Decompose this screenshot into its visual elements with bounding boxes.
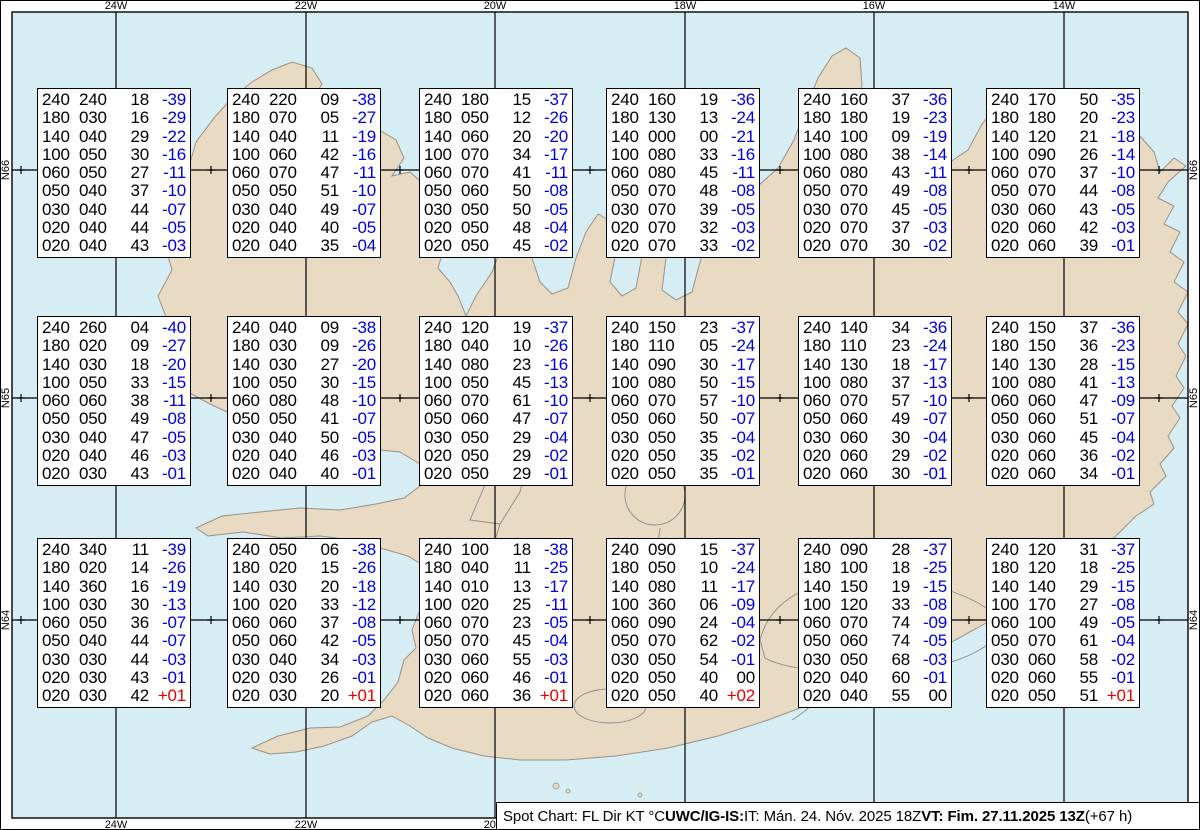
- wind-speed-value: 42: [1069, 219, 1098, 237]
- temperature-value: -04: [339, 237, 376, 255]
- flight-level-value: 100: [611, 374, 648, 392]
- temperature-value: -29: [149, 109, 186, 127]
- wind-speed-value: 13: [689, 109, 718, 127]
- flight-level-value: 020: [424, 687, 461, 705]
- wind-speed-value: 37: [120, 182, 149, 200]
- wind-speed-value: 51: [1069, 687, 1098, 705]
- wind-speed-value: 42: [310, 632, 339, 650]
- meridian-label-top: 24W: [105, 0, 128, 12]
- wind-dir-value: 030: [79, 651, 120, 669]
- spot-data-row: 10002033-12: [232, 596, 376, 614]
- flight-level-value: 180: [803, 559, 840, 577]
- wind-speed-value: 14: [120, 559, 149, 577]
- wind-dir-value: 050: [79, 146, 120, 164]
- spot-data-row: 24016019-36: [611, 91, 755, 109]
- wind-speed-value: 68: [881, 651, 910, 669]
- temperature-value: -01: [910, 465, 947, 483]
- spot-data-row: 02004046-03: [42, 447, 186, 465]
- spot-data-row: 18013013-24: [611, 109, 755, 127]
- spot-data-row: 10007034-17: [424, 146, 568, 164]
- wind-speed-value: 19: [881, 109, 910, 127]
- wind-dir-value: 050: [461, 219, 502, 237]
- flight-level-value: 050: [991, 410, 1028, 428]
- wind-dir-value: 150: [1028, 337, 1069, 355]
- flight-level-value: 060: [232, 392, 269, 410]
- wind-dir-value: 070: [269, 164, 310, 182]
- wind-speed-value: 28: [881, 541, 910, 559]
- flight-level-value: 050: [611, 632, 648, 650]
- wind-dir-value: 180: [840, 109, 881, 127]
- spot-data-box: 24022009-3818007005-2714004011-191000604…: [227, 88, 381, 258]
- spot-data-box: 24018015-3718005012-2614006020-201000703…: [419, 88, 573, 258]
- wind-dir-value: 040: [461, 337, 502, 355]
- temperature-value: -07: [339, 410, 376, 428]
- flight-level-value: 060: [611, 164, 648, 182]
- temperature-value: -37: [718, 541, 755, 559]
- wind-speed-value: 48: [310, 392, 339, 410]
- wind-dir-value: 030: [79, 109, 120, 127]
- temperature-value: -02: [1098, 651, 1135, 669]
- wind-dir-value: 120: [1028, 541, 1069, 559]
- wind-dir-value: 080: [840, 146, 881, 164]
- flight-level-value: 050: [232, 182, 269, 200]
- flight-level-value: 180: [232, 559, 269, 577]
- flight-level-value: 020: [424, 447, 461, 465]
- wind-speed-value: 31: [1069, 541, 1098, 559]
- wind-dir-value: 090: [840, 541, 881, 559]
- wind-dir-value: 030: [269, 356, 310, 374]
- spot-data-box: 24012031-3718012018-2514014029-151001702…: [986, 538, 1140, 708]
- flight-level-value: 020: [991, 237, 1028, 255]
- wind-speed-value: 35: [689, 465, 718, 483]
- spot-data-row: 24012031-37: [991, 541, 1135, 559]
- temperature-value: -15: [1098, 578, 1135, 596]
- spot-data-row: 14015019-15: [803, 578, 947, 596]
- spot-data-row: 02006046-01: [424, 669, 568, 687]
- flight-level-value: 240: [42, 91, 79, 109]
- temperature-value: -01: [1098, 237, 1135, 255]
- flight-level-value: 020: [42, 447, 79, 465]
- wind-dir-value: 060: [840, 465, 881, 483]
- spot-data-row: 10008038-14: [803, 146, 947, 164]
- wind-speed-value: 33: [120, 374, 149, 392]
- temperature-value: -26: [149, 559, 186, 577]
- temperature-value: +01: [1098, 687, 1135, 705]
- spot-data-row: 14036016-19: [42, 578, 186, 596]
- temperature-value: -16: [339, 146, 376, 164]
- flight-level-value: 030: [42, 651, 79, 669]
- wind-speed-value: 45: [1069, 429, 1098, 447]
- temperature-value: -11: [718, 164, 755, 182]
- temperature-value: -10: [339, 182, 376, 200]
- wind-dir-value: 060: [269, 146, 310, 164]
- spot-data-row: 06008048-10: [232, 392, 376, 410]
- spot-data-row: 06007023-05: [424, 614, 568, 632]
- wind-speed-value: 27: [120, 164, 149, 182]
- wind-dir-value: 080: [461, 356, 502, 374]
- temperature-value: -05: [1098, 201, 1135, 219]
- spot-data-row: 0200405500: [803, 687, 947, 705]
- temperature-value: -01: [910, 669, 947, 687]
- wind-speed-value: 37: [310, 614, 339, 632]
- wind-dir-value: 050: [269, 374, 310, 392]
- wind-speed-value: 13: [502, 578, 531, 596]
- temperature-value: -04: [718, 614, 755, 632]
- spot-data-row: 02003043-01: [42, 465, 186, 483]
- flight-level-value: 240: [991, 91, 1028, 109]
- temperature-value: -01: [149, 669, 186, 687]
- wind-speed-value: 45: [881, 201, 910, 219]
- flight-level-value: 030: [991, 429, 1028, 447]
- flight-level-value: 240: [232, 91, 269, 109]
- temperature-value: -04: [531, 429, 568, 447]
- wind-speed-value: 37: [881, 91, 910, 109]
- flight-level-value: 180: [42, 559, 79, 577]
- spot-data-row: 03006030-04: [803, 429, 947, 447]
- temperature-value: -03: [149, 651, 186, 669]
- temperature-value: -04: [1098, 429, 1135, 447]
- wind-dir-value: 070: [648, 392, 689, 410]
- wind-speed-value: 11: [310, 128, 339, 146]
- flight-level-value: 140: [611, 356, 648, 374]
- wind-dir-value: 360: [648, 596, 689, 614]
- spot-data-row: 10008033-16: [611, 146, 755, 164]
- wind-speed-value: 34: [310, 651, 339, 669]
- flight-level-value: 020: [611, 237, 648, 255]
- wind-speed-value: 74: [881, 632, 910, 650]
- temperature-value: -23: [910, 109, 947, 127]
- spot-data-box: 24026004-4018002009-2714003018-201000503…: [37, 316, 191, 486]
- wind-speed-value: 46: [310, 447, 339, 465]
- temperature-value: -27: [149, 337, 186, 355]
- spot-data-row: 10006042-16: [232, 146, 376, 164]
- status-bar: Spot Chart: FL Dir KT °C UWC/IG-IS: IT: …: [496, 802, 1200, 830]
- wind-dir-value: 000: [648, 128, 689, 146]
- wind-speed-value: 11: [502, 559, 531, 577]
- wind-dir-value: 160: [840, 91, 881, 109]
- wind-dir-value: 050: [648, 447, 689, 465]
- spot-data-row: 05004044-07: [42, 632, 186, 650]
- temperature-value: -13: [1098, 374, 1135, 392]
- temperature-value: -25: [910, 559, 947, 577]
- wind-speed-value: 29: [881, 447, 910, 465]
- wind-dir-value: 080: [648, 578, 689, 596]
- wind-dir-value: 150: [1028, 319, 1069, 337]
- flight-level-value: 140: [611, 128, 648, 146]
- flight-level-value: 050: [803, 632, 840, 650]
- flight-level-value: 050: [42, 632, 79, 650]
- flight-level-value: 060: [803, 392, 840, 410]
- wind-speed-value: 00: [689, 128, 718, 146]
- temperature-value: -15: [718, 374, 755, 392]
- wind-speed-value: 42: [310, 146, 339, 164]
- wind-speed-value: 47: [120, 429, 149, 447]
- spot-data-row: 10036006-09: [611, 596, 755, 614]
- wind-speed-value: 30: [120, 146, 149, 164]
- status-issue-time: IT: Mán. 24. Nóv. 2025 18Z: [744, 808, 921, 825]
- spot-data-row: 18002014-26: [42, 559, 186, 577]
- wind-speed-value: 21: [1069, 128, 1098, 146]
- temperature-value: -24: [718, 109, 755, 127]
- temperature-value: -01: [531, 669, 568, 687]
- temperature-value: -37: [718, 319, 755, 337]
- flight-level-value: 140: [991, 128, 1028, 146]
- spot-data-row: 24024018-39: [42, 91, 186, 109]
- temperature-value: -35: [1098, 91, 1135, 109]
- wind-speed-value: 05: [310, 109, 339, 127]
- wind-dir-value: 070: [1028, 632, 1069, 650]
- wind-speed-value: 33: [689, 146, 718, 164]
- temperature-value: -07: [149, 632, 186, 650]
- wind-speed-value: 29: [502, 429, 531, 447]
- wind-dir-value: 030: [79, 687, 120, 705]
- spot-data-row: 03006055-03: [424, 651, 568, 669]
- wind-speed-value: 44: [120, 651, 149, 669]
- spot-data-row: 18005012-26: [424, 109, 568, 127]
- flight-level-value: 020: [611, 219, 648, 237]
- wind-speed-value: 28: [1069, 356, 1098, 374]
- flight-level-value: 240: [232, 319, 269, 337]
- temperature-value: -40: [149, 319, 186, 337]
- wind-speed-value: 37: [881, 219, 910, 237]
- temperature-value: -10: [1098, 164, 1135, 182]
- temperature-value: -05: [910, 632, 947, 650]
- wind-dir-value: 080: [648, 374, 689, 392]
- wind-dir-value: 100: [461, 541, 502, 559]
- spot-data-row: 18004011-25: [424, 559, 568, 577]
- flight-level-value: 180: [232, 109, 269, 127]
- wind-speed-value: 49: [310, 201, 339, 219]
- wind-speed-value: 44: [120, 632, 149, 650]
- flight-level-value: 240: [803, 91, 840, 109]
- spot-data-row: 06006037-08: [232, 614, 376, 632]
- temperature-value: -36: [1098, 319, 1135, 337]
- temperature-value: -03: [531, 651, 568, 669]
- wind-dir-value: 050: [648, 669, 689, 687]
- flight-level-value: 050: [424, 182, 461, 200]
- flight-level-value: 050: [232, 632, 269, 650]
- flight-level-value: 050: [42, 410, 79, 428]
- flight-level-value: 140: [42, 128, 79, 146]
- wind-speed-value: 58: [1069, 651, 1098, 669]
- wind-dir-value: 340: [79, 541, 120, 559]
- wind-dir-value: 170: [1028, 91, 1069, 109]
- wind-speed-value: 49: [120, 410, 149, 428]
- wind-speed-value: 18: [881, 559, 910, 577]
- spot-data-row: 05007061-04: [991, 632, 1135, 650]
- meridian-label-top: 20W: [484, 0, 507, 12]
- wind-speed-value: 47: [1069, 392, 1098, 410]
- temperature-value: -26: [531, 109, 568, 127]
- spot-data-row: 24034011-39: [42, 541, 186, 559]
- temperature-value: -07: [531, 410, 568, 428]
- spot-data-row: 06007074-09: [803, 614, 947, 632]
- temperature-value: -17: [910, 356, 947, 374]
- flight-level-value: 240: [803, 319, 840, 337]
- flight-level-value: 100: [232, 374, 269, 392]
- temperature-value: -12: [339, 596, 376, 614]
- flight-level-value: 140: [424, 578, 461, 596]
- temperature-value: -39: [149, 541, 186, 559]
- wind-speed-value: 20: [310, 578, 339, 596]
- spot-data-row: 02003043-01: [42, 669, 186, 687]
- spot-data-row: 14014029-15: [991, 578, 1135, 596]
- wind-dir-value: 070: [269, 109, 310, 127]
- wind-speed-value: 33: [881, 596, 910, 614]
- flight-level-value: 180: [991, 559, 1028, 577]
- spot-data-row: 18002009-27: [42, 337, 186, 355]
- flight-level-value: 140: [424, 356, 461, 374]
- spot-data-row: 02004060-01: [803, 669, 947, 687]
- temperature-value: -02: [1098, 447, 1135, 465]
- flight-level-value: 240: [232, 541, 269, 559]
- temperature-value: -10: [910, 392, 947, 410]
- temperature-value: -05: [1098, 614, 1135, 632]
- wind-dir-value: 070: [1028, 182, 1069, 200]
- wind-speed-value: 23: [502, 356, 531, 374]
- spot-data-row: 10005045-13: [424, 374, 568, 392]
- temperature-value: -20: [339, 356, 376, 374]
- spot-data-row: 02006030-01: [803, 465, 947, 483]
- temperature-value: +01: [339, 687, 376, 705]
- wind-speed-value: 36: [120, 614, 149, 632]
- spot-data-row: 10008037-13: [803, 374, 947, 392]
- temperature-value: -02: [531, 237, 568, 255]
- flight-level-value: 180: [611, 109, 648, 127]
- wind-dir-value: 020: [269, 559, 310, 577]
- spot-data-row: 18007005-27: [232, 109, 376, 127]
- wind-speed-value: 61: [502, 392, 531, 410]
- wind-dir-value: 030: [269, 337, 310, 355]
- wind-speed-value: 41: [502, 164, 531, 182]
- wind-speed-value: 36: [1069, 447, 1098, 465]
- wind-dir-value: 120: [1028, 128, 1069, 146]
- wind-speed-value: 51: [1069, 410, 1098, 428]
- spot-data-row: 18018020-23: [991, 109, 1135, 127]
- temperature-value: -24: [718, 559, 755, 577]
- spot-data-row: 02004046-03: [232, 447, 376, 465]
- wind-speed-value: 41: [310, 410, 339, 428]
- temperature-value: -08: [1098, 596, 1135, 614]
- spot-data-row: 06008043-11: [803, 164, 947, 182]
- flight-level-value: 060: [991, 164, 1028, 182]
- temperature-value: -39: [149, 91, 186, 109]
- flight-level-value: 020: [803, 465, 840, 483]
- wind-dir-value: 100: [1028, 614, 1069, 632]
- wind-dir-value: 090: [1028, 146, 1069, 164]
- flight-level-value: 140: [232, 356, 269, 374]
- flight-level-value: 030: [611, 201, 648, 219]
- wind-speed-value: 45: [502, 374, 531, 392]
- temperature-value: -03: [339, 651, 376, 669]
- wind-dir-value: 050: [269, 410, 310, 428]
- temperature-value: -03: [1098, 219, 1135, 237]
- flight-level-value: 180: [42, 109, 79, 127]
- temperature-value: -07: [339, 201, 376, 219]
- flight-level-value: 020: [232, 669, 269, 687]
- spot-data-box: 24009028-3718010018-2514015019-151001203…: [798, 538, 952, 708]
- temperature-value: -04: [531, 219, 568, 237]
- wind-dir-value: 060: [1028, 392, 1069, 410]
- temperature-value: -01: [718, 465, 755, 483]
- spot-data-row: 14004029-22: [42, 128, 186, 146]
- wind-dir-value: 050: [648, 559, 689, 577]
- spot-data-row: 10005033-15: [42, 374, 186, 392]
- temperature-value: -05: [339, 429, 376, 447]
- flight-level-value: 020: [991, 219, 1028, 237]
- temperature-value: -16: [531, 356, 568, 374]
- wind-dir-value: 060: [269, 614, 310, 632]
- wind-dir-value: 010: [461, 578, 502, 596]
- wind-dir-value: 120: [1028, 559, 1069, 577]
- flight-level-value: 050: [42, 182, 79, 200]
- wind-dir-value: 060: [461, 128, 502, 146]
- wind-dir-value: 050: [79, 614, 120, 632]
- flight-level-value: 020: [803, 669, 840, 687]
- temperature-value: -10: [149, 182, 186, 200]
- status-offset: (+67 h): [1085, 808, 1132, 825]
- spot-data-row: 14003027-20: [232, 356, 376, 374]
- flight-level-value: 050: [424, 410, 461, 428]
- wind-dir-value: 150: [840, 578, 881, 596]
- flight-level-value: 140: [803, 356, 840, 374]
- wind-speed-value: 19: [502, 319, 531, 337]
- wind-speed-value: 40: [310, 219, 339, 237]
- flight-level-value: 060: [42, 164, 79, 182]
- flight-level-value: 020: [42, 237, 79, 255]
- flight-level-value: 180: [803, 109, 840, 127]
- flight-level-value: 020: [991, 669, 1028, 687]
- temperature-value: -01: [339, 465, 376, 483]
- spot-data-row: 05007044-08: [991, 182, 1135, 200]
- flight-level-value: 240: [611, 91, 648, 109]
- wind-speed-value: 36: [502, 687, 531, 705]
- wind-speed-value: 44: [120, 219, 149, 237]
- spot-data-row: 24009015-37: [611, 541, 755, 559]
- flight-level-value: 100: [991, 146, 1028, 164]
- meridian-label-top: 16W: [863, 0, 886, 12]
- wind-speed-value: 57: [881, 392, 910, 410]
- spot-data-row: 05006074-05: [803, 632, 947, 650]
- flight-level-value: 100: [611, 596, 648, 614]
- temperature-value: -05: [531, 614, 568, 632]
- temperature-value: -02: [910, 447, 947, 465]
- wind-dir-value: 020: [79, 559, 120, 577]
- flight-level-value: 020: [424, 465, 461, 483]
- wind-speed-value: 40: [689, 669, 718, 687]
- temperature-value: -08: [910, 182, 947, 200]
- spot-data-row: 18015036-23: [991, 337, 1135, 355]
- spot-data-row: 24012019-37: [424, 319, 568, 337]
- temperature-value: -18: [1098, 128, 1135, 146]
- wind-speed-value: 50: [1069, 91, 1098, 109]
- wind-dir-value: 060: [1028, 465, 1069, 483]
- wind-speed-value: 61: [1069, 632, 1098, 650]
- flight-level-value: 060: [232, 164, 269, 182]
- spot-data-row: 24016037-36: [803, 91, 947, 109]
- spot-data-row: 03006058-02: [991, 651, 1135, 669]
- temperature-value: -24: [718, 337, 755, 355]
- flight-level-value: 060: [42, 392, 79, 410]
- wind-dir-value: 030: [79, 669, 120, 687]
- temperature-value: -11: [531, 164, 568, 182]
- wind-speed-value: 49: [1069, 614, 1098, 632]
- temperature-value: -01: [1098, 465, 1135, 483]
- spot-data-row: 18010018-25: [803, 559, 947, 577]
- temperature-value: -11: [149, 392, 186, 410]
- wind-dir-value: 050: [461, 374, 502, 392]
- flight-level-value: 030: [991, 651, 1028, 669]
